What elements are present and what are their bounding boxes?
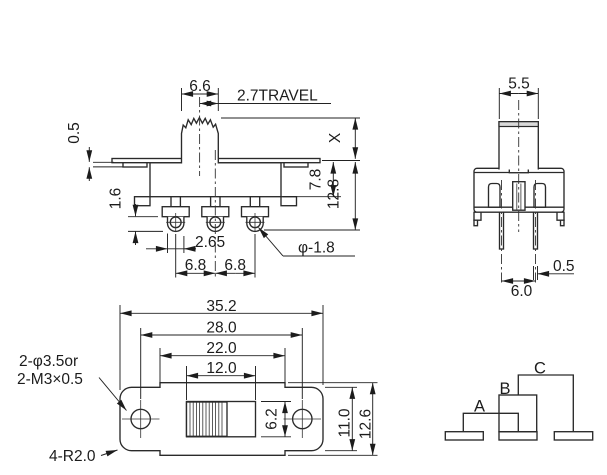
technical-drawing-page: 6.6 2.7TRAVEL 0.5 1.6 X 7.8 12.8 2.65 6.… <box>0 0 607 475</box>
top-view: 35.2 28.0 22.0 12.0 6.2 11.0 12.6 2-φ3.5… <box>17 298 378 465</box>
dim-knob-height-x: X <box>327 132 344 143</box>
side-view-geometry <box>474 100 564 284</box>
label-terminal-hole-dia: φ-1.8 <box>298 240 335 257</box>
label-mounting-holes-line2: 2-M3×0.5 <box>17 371 83 388</box>
dim-knob-width: 6.6 <box>189 78 211 95</box>
label-terminal-a: A <box>474 398 485 416</box>
circuit-pad-middle <box>499 432 537 440</box>
dim-overall-length: 35.2 <box>206 298 236 315</box>
dim-terminal-pitch-left: 6.8 <box>185 257 207 274</box>
dim-terminal-width: 2.65 <box>195 234 225 251</box>
dim-mounting-pitch: 28.0 <box>206 320 237 337</box>
circuit-trace-a <box>463 413 518 431</box>
dim-pin-spacing: 6.0 <box>511 283 533 300</box>
body-foot-left <box>135 197 151 206</box>
dim-slot-length: 12.0 <box>206 360 237 377</box>
top-view-geometry <box>120 383 323 456</box>
dim-body-depth: 7.8 <box>308 169 325 191</box>
flange-tab-left <box>123 163 147 167</box>
dim-step-height: 1.6 <box>108 188 125 210</box>
circuit-pad-right <box>554 432 592 440</box>
dim-pin-thickness: 0.5 <box>553 258 575 275</box>
dim-plate-width: 11.0 <box>337 408 354 437</box>
dim-overall-width: 12.6 <box>358 409 375 439</box>
dim-travel: 2.7TRAVEL <box>237 88 318 105</box>
flange-tab-right <box>284 163 308 167</box>
dim-slot-width: 6.2 <box>264 408 281 430</box>
side-foot-left <box>474 212 481 220</box>
side-view: 5.5 0.5 6.0 <box>474 76 575 301</box>
circuit-pad-left <box>445 432 483 440</box>
dim-overall-depth: 12.8 <box>326 179 343 209</box>
terminal-left <box>162 197 189 232</box>
label-terminal-b: B <box>499 380 510 398</box>
corner-radius-leader <box>101 450 118 456</box>
slide-knob-top <box>187 402 228 436</box>
label-mounting-holes-line1: 2-φ3.5or <box>19 353 78 370</box>
dim-side-knob-width: 5.5 <box>508 76 530 93</box>
label-terminal-c: C <box>534 360 546 378</box>
dim-flange-thickness: 0.5 <box>66 122 83 144</box>
dim-terminal-pitch-right: 6.8 <box>224 257 246 274</box>
circuit-diagram: A B C <box>445 360 592 441</box>
label-corner-radius: 4-R2.0 <box>49 448 96 465</box>
slide-switch-drawing: 6.6 2.7TRAVEL 0.5 1.6 X 7.8 12.8 2.65 6.… <box>0 0 607 475</box>
terminal-right <box>242 197 269 232</box>
front-view: 6.6 2.7TRAVEL 0.5 1.6 X 7.8 12.8 2.65 6.… <box>66 78 360 278</box>
body-foot-right <box>281 197 297 206</box>
circuit-trace-c <box>518 375 573 432</box>
side-foot-right <box>557 212 564 220</box>
dim-body-length: 22.0 <box>206 340 237 357</box>
